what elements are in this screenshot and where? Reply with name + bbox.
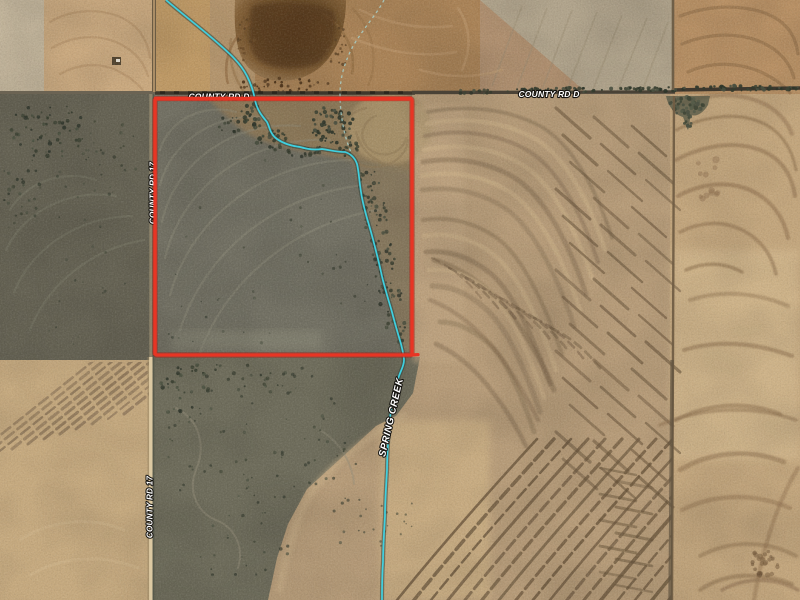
svg-text:COUNTY RD D: COUNTY RD D [518,89,579,99]
svg-text:COUNTY RD 17: COUNTY RD 17 [146,476,155,539]
